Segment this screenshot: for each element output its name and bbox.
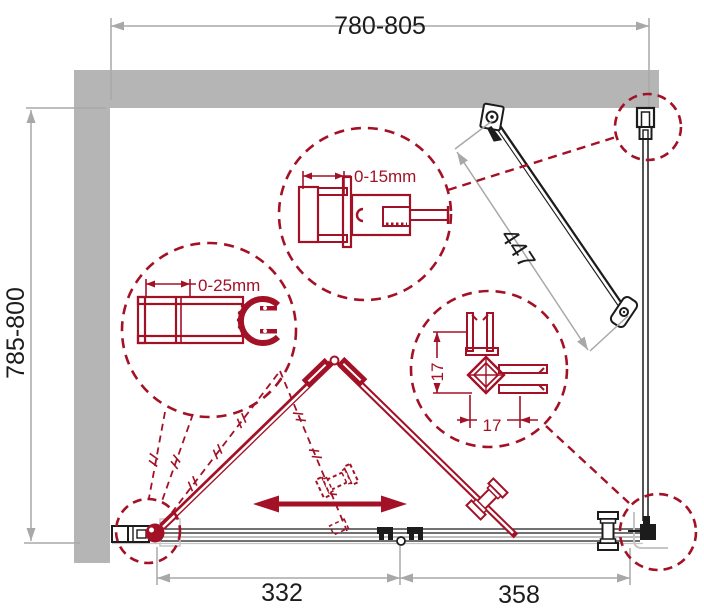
clamp-ring [241, 299, 278, 343]
ghost-handle [316, 464, 359, 498]
dimension-width-label: 780-805 [334, 12, 426, 40]
arrowhead-bottom [27, 528, 36, 541]
arrowhead-left [111, 22, 124, 31]
walls [74, 70, 659, 563]
detail-top-profile: 0-15mm [299, 167, 448, 247]
hinge-pin [331, 357, 339, 365]
callout-top-profile [279, 128, 451, 300]
leader-top [448, 137, 616, 190]
slide-direction-arrow [253, 496, 407, 513]
guide-roller [397, 537, 405, 545]
left-wall [74, 70, 110, 563]
pivot-highlight [149, 528, 154, 533]
dimension-depth-label: 785-800 [2, 287, 30, 379]
dimension-support-bar: 447 [455, 121, 628, 351]
plan-drawing: 780-805 785-800 332 358 [0, 0, 704, 608]
door-handle [466, 478, 507, 519]
dimension-door-label: 332 [261, 579, 303, 607]
detail-wall-profile: 0-25mm [138, 276, 278, 343]
dimension-side-label: 358 [498, 581, 540, 608]
support-bar [478, 103, 639, 328]
arrowhead-right [636, 22, 649, 31]
bottom-track [112, 526, 643, 545]
dimension-bottom: 332 358 [157, 546, 630, 608]
top-wall-bracket [637, 108, 654, 139]
glass-tick-marks [148, 410, 337, 499]
fold-hinge [302, 357, 368, 389]
detail-post-width-label: 17 [483, 416, 502, 435]
detail-top-label: 0-15mm [354, 167, 416, 186]
shower-enclosure-dimension-diagram: 780-805 785-800 332 358 [0, 0, 704, 608]
support-bar-glass-clamp [609, 295, 639, 329]
detail-post-depth-label: 17 [428, 363, 447, 382]
fixed-panel-knob [598, 512, 618, 550]
track-center-guides [377, 527, 423, 545]
top-wall [74, 70, 659, 108]
detail-callouts [116, 94, 696, 570]
corner-fitting [628, 512, 668, 548]
arrowhead-top [27, 110, 36, 123]
folding-door [146, 357, 517, 547]
clip-glyph [357, 209, 363, 221]
detail-corner-post: 17 17 [428, 313, 547, 435]
leader-corner [546, 426, 629, 503]
dimension-bar-label: 447 [495, 224, 541, 274]
detail-wall-label: 0-25mm [198, 276, 260, 295]
